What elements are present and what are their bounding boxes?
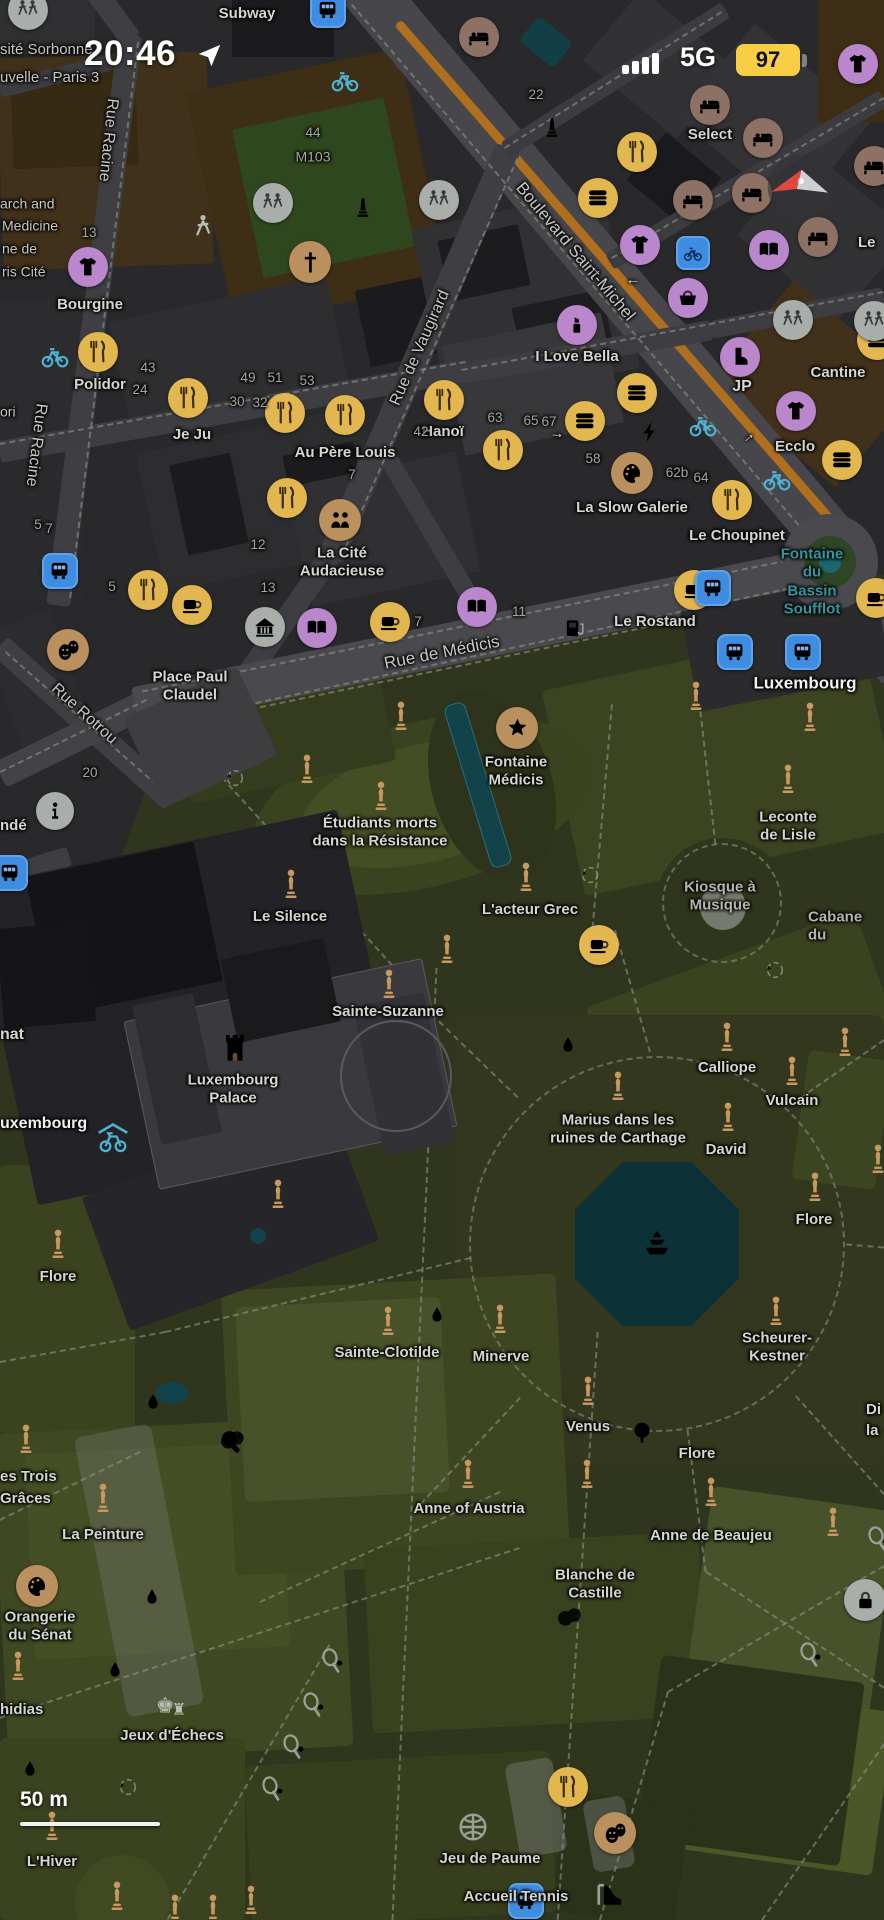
bus-icon[interactable] — [785, 634, 821, 670]
obelisk-icon[interactable] — [538, 114, 566, 142]
signal-strength-icon — [622, 50, 666, 74]
network-type: 5G — [680, 42, 716, 73]
drop-icon[interactable] — [427, 1305, 447, 1325]
lock-icon[interactable] — [844, 1579, 884, 1621]
statue-icon — [720, 1102, 736, 1135]
restaurant-icon[interactable] — [548, 1767, 588, 1807]
burger-icon[interactable] — [617, 373, 657, 413]
statue-icon — [870, 1144, 884, 1177]
bed-icon[interactable] — [798, 217, 838, 257]
house-number: 5 — [108, 579, 116, 595]
statue-icon — [50, 1229, 66, 1262]
statue-icon — [167, 1894, 183, 1920]
castle-icon[interactable] — [217, 1029, 253, 1065]
bed-icon[interactable] — [690, 85, 730, 125]
restaurant-icon[interactable] — [325, 395, 365, 435]
bus-icon[interactable] — [717, 634, 753, 670]
bolt-icon[interactable] — [638, 420, 662, 444]
restaurant-icon[interactable] — [424, 380, 464, 420]
statue-icon — [243, 1885, 259, 1918]
statue-icon — [719, 1022, 735, 1055]
statue-icon — [460, 1459, 476, 1492]
info-icon[interactable] — [36, 792, 74, 830]
restaurant-icon[interactable] — [483, 430, 523, 470]
statue-icon — [768, 1296, 784, 1329]
statue-icon — [283, 869, 299, 902]
house-number: 20 — [82, 765, 97, 781]
statue-icon — [837, 1027, 853, 1060]
house-number: 58 — [585, 451, 600, 467]
cafe-icon[interactable] — [370, 602, 410, 642]
bed-icon[interactable] — [673, 180, 713, 220]
house-number: 42 — [413, 424, 428, 440]
map-canvas[interactable]: ♚♜sité Sorbonneuvelle - Paris 3arch andM… — [0, 0, 884, 1920]
cafe-icon[interactable] — [172, 585, 212, 625]
battery-indicator: 97 — [736, 44, 800, 76]
drop-icon[interactable] — [20, 1759, 40, 1779]
obelisk-icon[interactable] — [349, 194, 377, 222]
statue-icon — [688, 681, 704, 714]
drop-icon[interactable] — [558, 1035, 578, 1055]
palette-icon[interactable] — [16, 1565, 58, 1607]
fountain-icon[interactable] — [639, 1226, 675, 1262]
statue-icon — [380, 1306, 396, 1339]
drop-icon[interactable] — [142, 1587, 162, 1607]
recycle-icon[interactable] — [579, 864, 601, 886]
tennis-icon[interactable] — [297, 1690, 329, 1722]
cafe-icon[interactable] — [579, 925, 619, 965]
statue-icon — [299, 754, 315, 787]
recycle-icon[interactable] — [224, 767, 246, 789]
statue-icon — [780, 764, 796, 797]
statue-icon — [109, 1881, 125, 1914]
map-label[interactable]: La Slow Galerie — [576, 499, 688, 517]
map-label[interactable]: ndé — [0, 817, 27, 835]
slide-icon[interactable] — [592, 1874, 628, 1910]
statue-icon — [802, 702, 818, 735]
statue-icon — [373, 781, 389, 814]
bush-icon[interactable] — [217, 1424, 249, 1456]
statue-icon — [703, 1477, 719, 1510]
footpath-circle — [662, 843, 782, 963]
restaurant-icon[interactable] — [265, 393, 305, 433]
statue-icon — [18, 1424, 34, 1457]
masks-icon[interactable] — [594, 1812, 636, 1854]
tennis-icon[interactable] — [862, 1524, 884, 1556]
scale-line — [20, 1822, 160, 1826]
restaurant-icon[interactable] — [712, 480, 752, 520]
statue-icon — [580, 1376, 596, 1409]
bikeshelter-icon[interactable] — [95, 1120, 131, 1156]
boot-icon[interactable] — [720, 337, 760, 377]
runner1-icon[interactable] — [188, 212, 218, 242]
status-bar: 20:46 5G 97 — [0, 0, 884, 90]
compass-icon[interactable] — [763, 150, 838, 225]
svg-text:♜: ♜ — [172, 1701, 187, 1719]
book-icon[interactable] — [457, 587, 497, 627]
book-icon[interactable] — [749, 230, 789, 270]
tennis-icon[interactable] — [794, 1640, 826, 1672]
runners-icon[interactable] — [253, 183, 293, 223]
statue-icon — [784, 1056, 800, 1089]
bus-icon[interactable] — [695, 570, 731, 606]
restaurant-icon[interactable] — [128, 570, 168, 610]
statue-icon — [95, 1483, 111, 1516]
community-icon[interactable] — [319, 499, 361, 541]
building-block — [250, 1228, 266, 1244]
statue-icon — [825, 1507, 841, 1540]
bike-icon[interactable] — [688, 410, 718, 440]
statue-icon — [381, 969, 397, 1002]
book-icon[interactable] — [297, 608, 337, 648]
restaurant-icon[interactable] — [78, 332, 118, 372]
building-block — [0, 921, 96, 1029]
tennis-icon[interactable] — [316, 1646, 348, 1678]
maps-app-screen: ♚♜sité Sorbonneuvelle - Paris 3arch andM… — [0, 0, 884, 1920]
statue-icon — [492, 1304, 508, 1337]
palette-icon[interactable] — [611, 452, 653, 494]
shirt-icon[interactable] — [68, 247, 108, 287]
bush-icon[interactable] — [554, 1601, 586, 1633]
bike-icon[interactable] — [762, 464, 792, 494]
bus-icon[interactable] — [508, 1883, 544, 1919]
burger-icon[interactable] — [565, 401, 605, 441]
chess-icon[interactable]: ♚♜ — [152, 1687, 188, 1723]
masks-icon[interactable] — [47, 629, 89, 671]
tennis-icon[interactable] — [256, 1774, 288, 1806]
status-time: 20:46 — [84, 34, 176, 74]
bus-icon[interactable] — [0, 855, 28, 891]
restaurant-icon[interactable] — [168, 378, 208, 418]
bank-icon[interactable] — [245, 607, 285, 647]
bike-icon[interactable] — [40, 341, 70, 371]
statue-icon — [610, 1071, 626, 1104]
statue-icon — [439, 934, 455, 967]
lipstick-icon[interactable] — [557, 305, 597, 345]
battery-nub — [802, 54, 807, 67]
burger-icon[interactable] — [578, 178, 618, 218]
church-icon[interactable] — [289, 241, 331, 283]
bus-icon[interactable] — [42, 553, 78, 589]
location-arrow-icon — [196, 42, 223, 69]
bikerental-icon[interactable] — [676, 236, 710, 270]
statue-icon — [518, 862, 534, 895]
recycle-icon[interactable] — [764, 959, 786, 981]
burger-icon[interactable] — [822, 440, 862, 480]
bed-icon[interactable] — [854, 146, 884, 186]
house-number: 64 — [693, 470, 708, 486]
house-number: 62b — [666, 465, 689, 481]
drop-icon[interactable] — [105, 1660, 125, 1680]
shirt-icon[interactable] — [620, 225, 660, 265]
bed-icon[interactable] — [743, 118, 783, 158]
restaurant-icon[interactable] — [617, 132, 657, 172]
statue-icon — [579, 1459, 595, 1492]
map-label[interactable]: Le Choupinet — [689, 527, 785, 545]
building-block — [819, 551, 841, 573]
lawn — [235, 1297, 450, 1502]
tree-icon[interactable] — [629, 1420, 655, 1446]
basketball-icon[interactable] — [455, 1809, 491, 1845]
statue-icon — [270, 1179, 286, 1212]
drop-icon[interactable] — [143, 1392, 163, 1412]
statue-icon — [205, 1894, 221, 1920]
scale-label: 50 m — [20, 1788, 160, 1812]
statue-icon — [10, 1651, 26, 1684]
statue-icon — [393, 701, 409, 734]
tennis-icon[interactable] — [277, 1732, 309, 1764]
basket-icon[interactable] — [668, 278, 708, 318]
statue-icon — [807, 1172, 823, 1205]
map-label[interactable]: Hanoï — [422, 423, 464, 441]
runners-icon[interactable] — [419, 180, 459, 220]
star-icon[interactable] — [496, 707, 538, 749]
evstation-icon[interactable] — [562, 615, 588, 641]
map-scale-bar: 50 m — [20, 1788, 160, 1826]
shirt-icon[interactable] — [776, 391, 816, 431]
house-number: 13 — [260, 580, 275, 596]
runners-icon[interactable] — [773, 300, 813, 340]
restaurant-icon[interactable] — [267, 478, 307, 518]
